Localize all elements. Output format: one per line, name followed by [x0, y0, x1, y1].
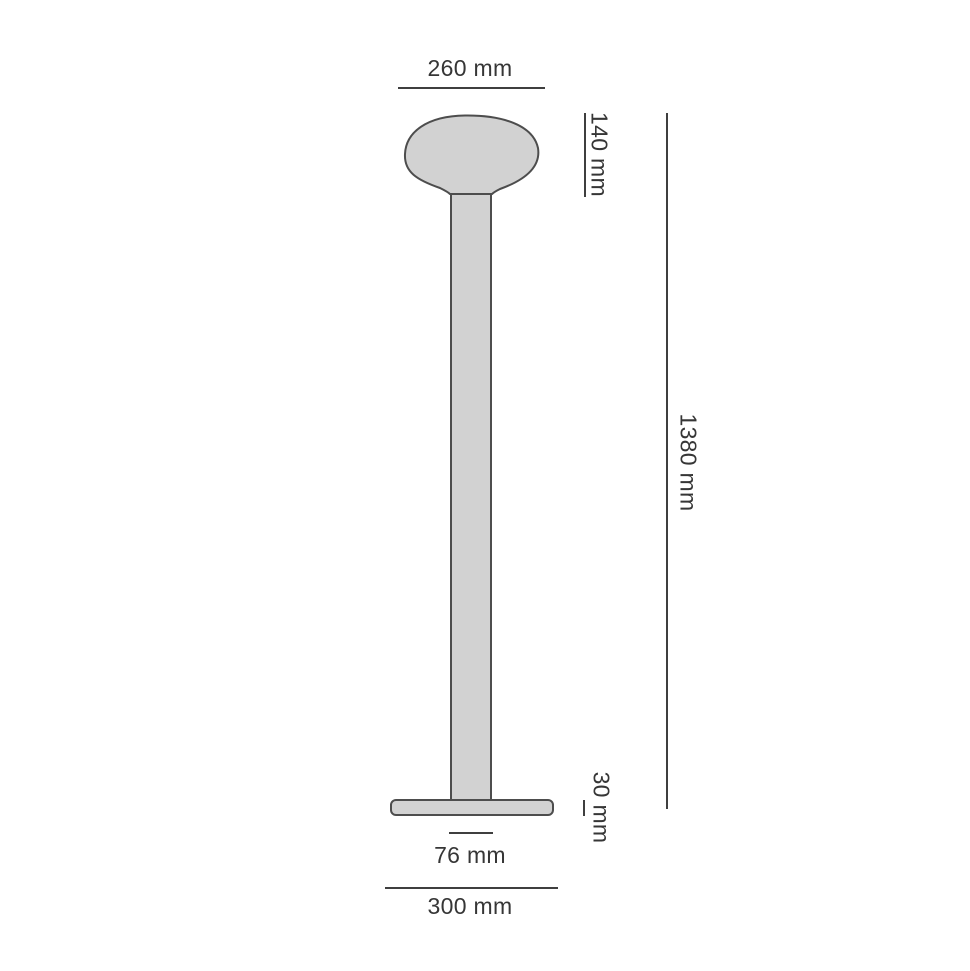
stem-diameter-label: 76 mm [390, 841, 550, 869]
total-height-dimension-line [666, 113, 668, 809]
head-width-dimension-line [398, 87, 545, 89]
base-height-dimension-line [583, 800, 585, 816]
total-height-label: 1380 mm [676, 403, 701, 523]
base-height-label: 30 mm [589, 748, 614, 868]
base-width-dimension-line [385, 887, 558, 889]
head-height-label: 140 mm [587, 95, 612, 215]
base-width-label: 300 mm [390, 892, 550, 920]
head-height-dimension-line [584, 113, 586, 197]
lamp-stem-shape [451, 194, 491, 802]
lamp-base-shape [391, 800, 553, 815]
floor-lamp-drawing [387, 112, 557, 818]
lamp-head-shape [405, 115, 538, 194]
dimension-diagram: 260 mm 140 mm 1380 mm 30 mm 76 mm 300 mm [0, 0, 970, 971]
head-width-label: 260 mm [390, 54, 550, 82]
stem-diameter-dimension-line [449, 832, 493, 834]
